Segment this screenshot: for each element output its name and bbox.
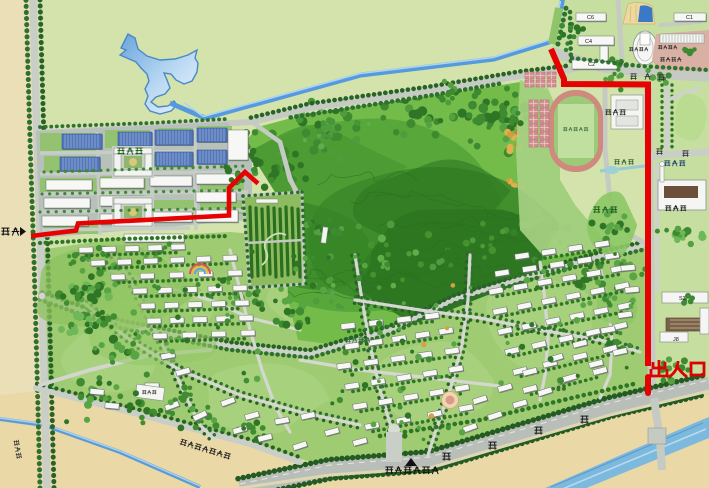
svg-text:C1: C1 xyxy=(686,15,693,21)
svg-text:S3: S3 xyxy=(679,296,686,302)
svg-text:C4: C4 xyxy=(585,39,592,45)
svg-text:J8: J8 xyxy=(673,337,679,343)
svg-text:C6: C6 xyxy=(587,15,594,21)
svg-text:C2: C2 xyxy=(588,62,595,68)
